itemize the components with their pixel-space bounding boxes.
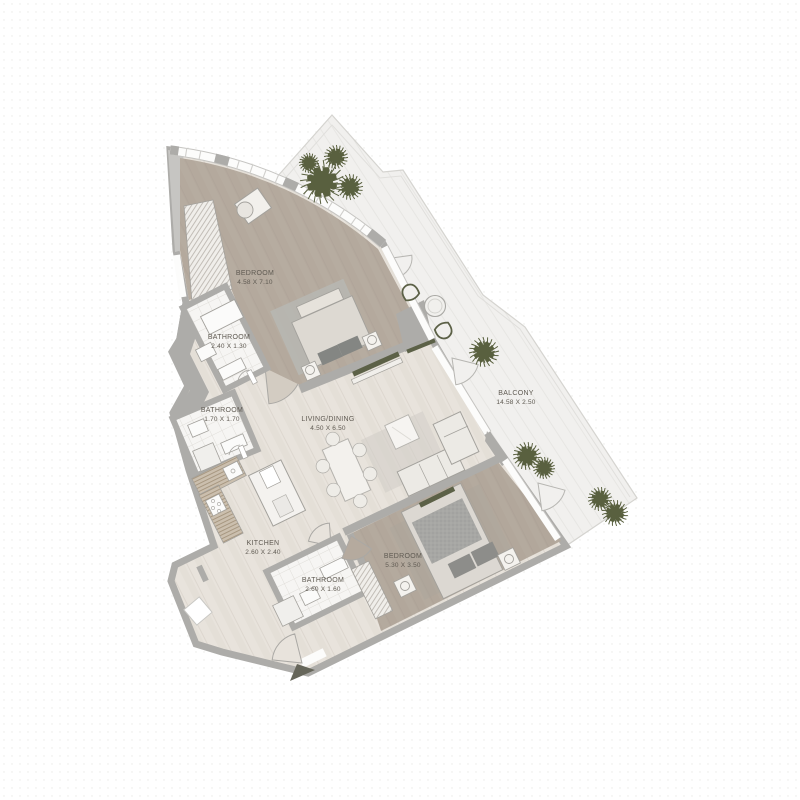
svg-text:BATHROOM: BATHROOM (208, 334, 250, 341)
svg-text:5.30 X 3.50: 5.30 X 3.50 (385, 562, 421, 569)
svg-text:BATHROOM: BATHROOM (302, 577, 344, 584)
svg-text:LIVING/DINING: LIVING/DINING (301, 416, 354, 423)
svg-text:KITCHEN: KITCHEN (247, 540, 280, 547)
svg-text:2.60 X 2.40: 2.60 X 2.40 (245, 549, 281, 556)
svg-text:BALCONY: BALCONY (498, 390, 534, 397)
svg-text:BATHROOM: BATHROOM (201, 407, 243, 414)
svg-text:BEDROOM: BEDROOM (236, 270, 274, 277)
svg-text:2.40 X 1.30: 2.40 X 1.30 (211, 343, 247, 350)
svg-text:1.70 X 1.70: 1.70 X 1.70 (204, 416, 240, 423)
svg-text:4.58 X 7.10: 4.58 X 7.10 (237, 279, 273, 286)
svg-text:14.58 X 2.50: 14.58 X 2.50 (496, 399, 535, 406)
svg-text:4.50 X 6.50: 4.50 X 6.50 (310, 425, 346, 432)
svg-text:2.60 X 1.60: 2.60 X 1.60 (305, 586, 341, 593)
svg-text:BEDROOM: BEDROOM (384, 553, 422, 560)
